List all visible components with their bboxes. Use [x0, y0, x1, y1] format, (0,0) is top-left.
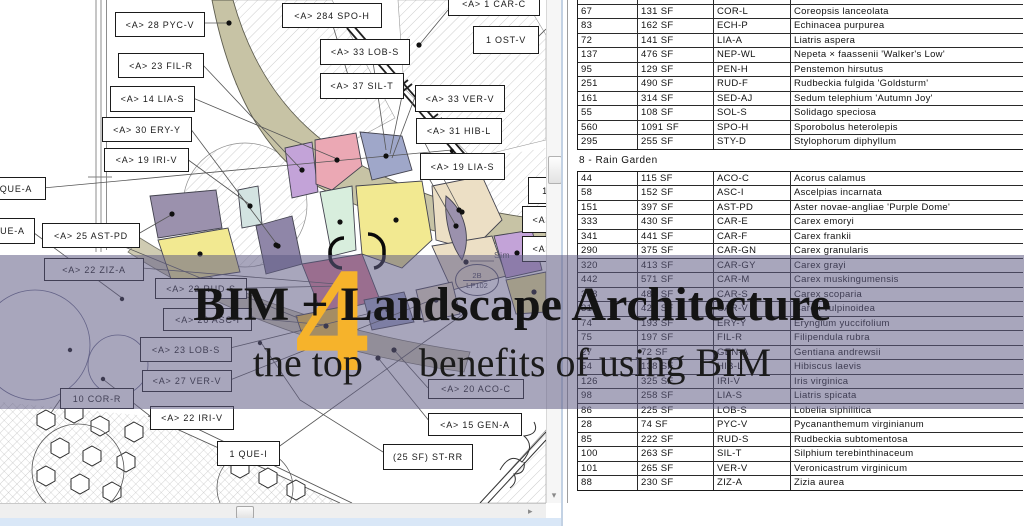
botanical-name-cell: Solidago speciosa — [791, 106, 1023, 120]
botanical-name-cell: Echinacea purpurea — [791, 19, 1023, 33]
callout-label[interactable]: <A> 1 CAR-C — [448, 0, 540, 16]
vertical-scrollbar[interactable]: ▾ — [546, 0, 562, 503]
vertical-scrollbar-thumb[interactable] — [548, 156, 562, 184]
schedule-row[interactable]: 58152 SFASC-IAscelpias incarnata — [578, 186, 1023, 201]
qty-cell: 341 — [578, 230, 638, 244]
botanical-name-cell: Stylophorum diphyllum — [791, 135, 1023, 149]
code-cell: ECH-P — [714, 19, 791, 33]
qty-cell: 101 — [578, 462, 638, 476]
qty-cell: 251 — [578, 77, 638, 91]
callout-label[interactable]: <A> 28 PYC-V — [115, 12, 205, 37]
area-cell: 152 SF — [638, 186, 714, 200]
area-cell: 162 SF — [638, 19, 714, 33]
code-cell: COR-L — [714, 5, 791, 19]
qty-cell: 100 — [578, 447, 638, 461]
area-cell: 222 SF — [638, 433, 714, 447]
qty-cell: 72 — [578, 34, 638, 48]
callout-label[interactable]: <A> 23 FIL-R — [118, 53, 204, 78]
botanical-name-cell: Penstemon hirsutus — [791, 63, 1023, 77]
callout-label[interactable]: 1 QUE-I — [217, 441, 280, 466]
planting-schedule: 67131 SFCOR-LCoreopsis lanceolata83162 S… — [577, 0, 1024, 491]
qty-cell: 88 — [578, 476, 638, 490]
qty-cell: 295 — [578, 135, 638, 149]
area-cell: 230 SF — [638, 476, 714, 490]
callout-label[interactable]: <A> 30 ERY-Y — [102, 117, 192, 142]
code-cell: PYC-V — [714, 418, 791, 432]
area-cell: 131 SF — [638, 5, 714, 19]
schedule-row[interactable]: 341441 SFCAR-FCarex frankii — [578, 230, 1023, 245]
schedule-row[interactable]: 137476 SFNEP-WLNepeta × faassenii 'Walke… — [578, 48, 1023, 63]
schedule-row[interactable]: 151397 SFAST-PDAster novae-angliae 'Purp… — [578, 201, 1023, 216]
callout-label[interactable]: QUE-A — [0, 177, 46, 200]
callout-label[interactable]: <A> 25 AST-PD — [42, 223, 140, 248]
code-cell: SOL-S — [714, 106, 791, 120]
area-cell: 74 SF — [638, 418, 714, 432]
code-cell: ACO-C — [714, 172, 791, 186]
code-cell: SPO-H — [714, 121, 791, 135]
botanical-name-cell: Veronicastrum virginicum — [791, 462, 1023, 476]
code-cell: ASC-I — [714, 186, 791, 200]
schedule-table: 67131 SFCOR-LCoreopsis lanceolata83162 S… — [577, 0, 1023, 150]
horizontal-scrollbar[interactable]: ▸ — [0, 503, 546, 519]
window-bottom-edge — [0, 518, 562, 526]
botanical-name-cell: Sedum telephium 'Autumn Joy' — [791, 92, 1023, 106]
botanical-name-cell: Liatris aspera — [791, 34, 1023, 48]
callout-label[interactable]: <A> 22 IRI-V — [150, 406, 234, 430]
botanical-name-cell: Sporobolus heterolepis — [791, 121, 1023, 135]
code-cell: SIL-T — [714, 447, 791, 461]
botanical-name-cell: Carex emoryi — [791, 215, 1023, 229]
qty-cell: 44 — [578, 172, 638, 186]
botanical-name-cell: Nepeta × faassenii 'Walker's Low' — [791, 48, 1023, 62]
callout-label[interactable]: <A> 19 LIA-S — [420, 153, 505, 180]
code-cell: SED-AJ — [714, 92, 791, 106]
code-cell: ZIZ-A — [714, 476, 791, 490]
schedule-row[interactable]: 44115 SFACO-CAcorus calamus — [578, 172, 1023, 187]
area-cell: 397 SF — [638, 201, 714, 215]
qty-cell: 85 — [578, 433, 638, 447]
pane-border-line — [567, 0, 568, 503]
schedule-row[interactable]: 72141 SFLIA-ALiatris aspera — [578, 34, 1023, 49]
code-cell: NEP-WL — [714, 48, 791, 62]
code-cell — [714, 0, 791, 4]
area-cell: 141 SF — [638, 34, 714, 48]
botanical-name-cell: Silphium terebinthinaceum — [791, 447, 1023, 461]
botanical-name-cell: Carex frankii — [791, 230, 1023, 244]
botanical-name-cell: Zizia aurea — [791, 476, 1023, 490]
qty-cell: 83 — [578, 19, 638, 33]
callout-label[interactable]: <A> 284 SPO-H — [282, 3, 382, 28]
code-cell: STY-D — [714, 135, 791, 149]
botanical-name-cell: Acorus calamus — [791, 172, 1023, 186]
code-cell: VER-V — [714, 462, 791, 476]
area-cell: 441 SF — [638, 230, 714, 244]
callout-label[interactable]: 1 OST-V — [473, 26, 539, 54]
schedule-row[interactable]: 5601091 SFSPO-HSporobolus heterolepis — [578, 121, 1023, 136]
banner-subtitle-right: benefits of using BIM — [419, 339, 771, 386]
area-cell: 115 SF — [638, 172, 714, 186]
qty-cell — [578, 0, 638, 4]
callout-label[interactable]: UE-A — [0, 218, 35, 244]
schedule-row[interactable]: 83162 SFECH-PEchinacea purpurea — [578, 19, 1023, 34]
schedule-row[interactable]: 67131 SFCOR-LCoreopsis lanceolata — [578, 5, 1023, 20]
callout-label[interactable]: (25 SF) ST-RR — [383, 444, 473, 470]
area-cell: 108 SF — [638, 106, 714, 120]
code-cell: CAR-F — [714, 230, 791, 244]
schedule-row[interactable]: 55108 SFSOL-SSolidago speciosa — [578, 106, 1023, 121]
banner-title: BIM + Landscape Architecture — [0, 277, 1024, 332]
area-cell: 1091 SF — [638, 121, 714, 135]
area-cell: 430 SF — [638, 215, 714, 229]
schedule-row[interactable]: 88230 SFZIZ-AZizia aurea — [578, 476, 1023, 490]
callout-label[interactable]: <A> 37 SIL-T — [320, 73, 404, 99]
area-cell: 129 SF — [638, 63, 714, 77]
qty-cell: 95 — [578, 63, 638, 77]
callout-label[interactable]: <A> 33 LOB-S — [320, 39, 410, 65]
callout-label[interactable]: <A> 33 VER-V — [415, 85, 505, 112]
botanical-name-cell: Pycananthemum virginianum — [791, 418, 1023, 432]
qty-cell: 55 — [578, 106, 638, 120]
qty-cell: 161 — [578, 92, 638, 106]
area-cell — [638, 0, 714, 4]
schedule-row[interactable]: 85222 SFRUD-SRudbeckia subtomentosa — [578, 433, 1023, 448]
callout-label[interactable]: <A> 19 IRI-V — [104, 148, 189, 172]
qty-cell: 28 — [578, 418, 638, 432]
area-cell: 265 SF — [638, 462, 714, 476]
scroll-right-icon[interactable]: ▸ — [528, 505, 533, 518]
qty-cell: 560 — [578, 121, 638, 135]
area-cell: 314 SF — [638, 92, 714, 106]
banner-subtitle-left: the top — [253, 339, 363, 386]
callout-label[interactable]: <A> — [522, 206, 547, 233]
banner-subtitle: the top benefits of using BIM — [0, 339, 1024, 386]
banner-overlay: 4 BIM + Landscape Architecture the top b… — [0, 255, 1024, 409]
qty-cell: 137 — [578, 48, 638, 62]
botanical-name-cell: Ascelpias incarnata — [791, 186, 1023, 200]
code-cell: LIA-A — [714, 34, 791, 48]
qty-cell: 58 — [578, 186, 638, 200]
code-cell: PEN-H — [714, 63, 791, 77]
callout-label[interactable]: <A> 31 HIB-L — [416, 118, 502, 144]
qty-cell: 67 — [578, 5, 638, 19]
schedule-row[interactable]: 2874 SFPYC-VPycananthemum virginianum — [578, 418, 1023, 433]
banner-subtitle-gap — [363, 339, 419, 386]
area-cell: 476 SF — [638, 48, 714, 62]
qty-cell: 151 — [578, 201, 638, 215]
schedule-row[interactable]: 251490 SFRUD-FRudbeckia fulgida 'Goldstu… — [578, 77, 1023, 92]
qty-cell: 333 — [578, 215, 638, 229]
code-cell: RUD-F — [714, 77, 791, 91]
callout-label[interactable]: 1 — [528, 177, 547, 204]
callout-label[interactable]: <A> 14 LIA-S — [110, 86, 195, 112]
callout-label[interactable]: <A> 15 GEN-A — [428, 413, 522, 436]
schedule-row[interactable]: 95129 SFPEN-HPenstemon hirsutus — [578, 63, 1023, 78]
schedule-row[interactable]: 161314 SFSED-AJSedum telephium 'Autumn J… — [578, 92, 1023, 107]
schedule-row[interactable]: 333430 SFCAR-ECarex emoryi — [578, 215, 1023, 230]
code-cell: RUD-S — [714, 433, 791, 447]
botanical-name-cell: Aster novae-angliae 'Purple Dome' — [791, 201, 1023, 215]
schedule-row[interactable]: 100263 SFSIL-TSilphium terebinthinaceum — [578, 447, 1023, 462]
area-cell: 263 SF — [638, 447, 714, 461]
code-cell: AST-PD — [714, 201, 791, 215]
scroll-down-icon[interactable]: ▾ — [547, 489, 561, 502]
callout-layer: <A> 28 PYC-V<A> 284 SPO-H<A> 1 CAR-C1 OS… — [0, 0, 546, 503]
drawing-pane[interactable]: <A> 28 PYC-V<A> 284 SPO-H<A> 1 CAR-C1 OS… — [0, 0, 547, 503]
schedule-row[interactable]: 101265 SFVER-VVeronicastrum virginicum — [578, 462, 1023, 477]
botanical-name-cell — [791, 0, 1023, 4]
botanical-name-cell: Coreopsis lanceolata — [791, 5, 1023, 19]
schedule-row[interactable]: 295255 SFSTY-DStylophorum diphyllum — [578, 135, 1023, 149]
revit-window: <A> 28 PYC-V<A> 284 SPO-H<A> 1 CAR-C1 OS… — [0, 0, 1024, 526]
schedule-section-header: 8 - Rain Garden — [579, 155, 1024, 168]
botanical-name-cell: Rudbeckia subtomentosa — [791, 433, 1023, 447]
botanical-name-cell: Rudbeckia fulgida 'Goldsturm' — [791, 77, 1023, 91]
area-cell: 490 SF — [638, 77, 714, 91]
area-cell: 255 SF — [638, 135, 714, 149]
code-cell: CAR-E — [714, 215, 791, 229]
